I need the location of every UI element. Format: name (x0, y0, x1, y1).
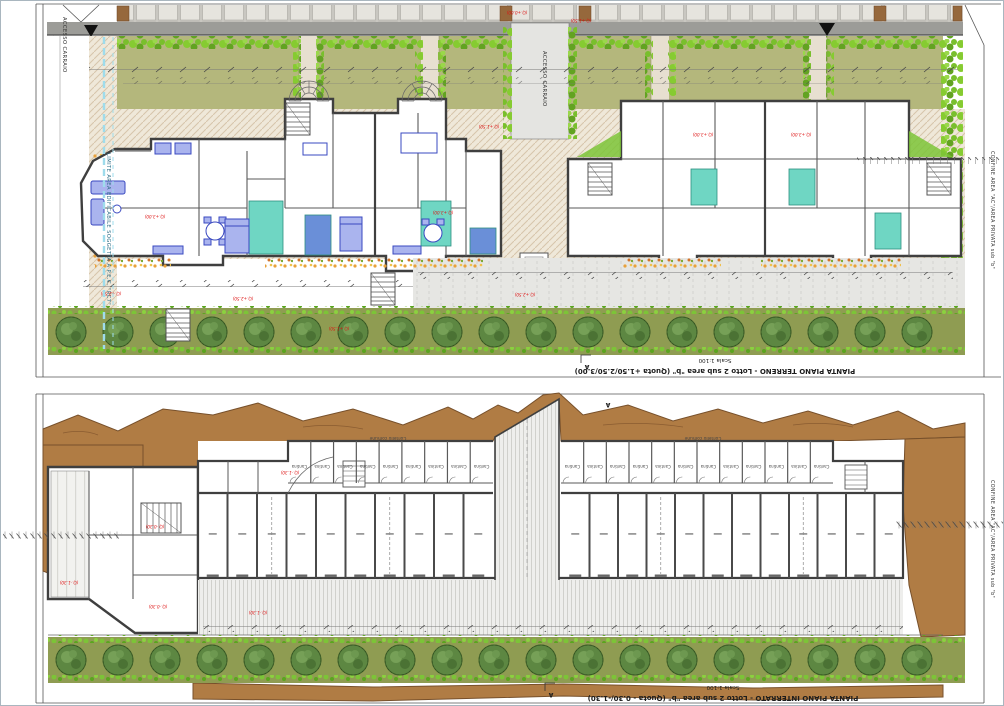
tree-icon (667, 645, 697, 675)
staircase (588, 163, 612, 195)
tree-icon (714, 317, 744, 347)
cantina-label: Cantina (700, 464, 716, 469)
tree-icon (573, 645, 603, 675)
boundary-label: CONFINE AREA "AC"/AREA PRIVATA sub "b" (989, 151, 995, 269)
boundary-label: CONFINE AREA "AC"/AREA PRIVATA sub "b" (989, 480, 995, 598)
quota-label: (Q.+1.50) (478, 124, 499, 129)
tree-icon (385, 645, 415, 675)
corridor-label: Corsello comune (369, 435, 406, 441)
section-marker: A (584, 363, 589, 370)
tree-icon (338, 645, 368, 675)
quota-label: (Q.-0.30) (148, 604, 167, 609)
cantina-label: Cantina (723, 464, 739, 469)
dimension-chain (897, 522, 1004, 529)
dimension-chain (857, 157, 1003, 164)
quota-label: (Q.+3.00) (790, 132, 811, 137)
tree-icon (667, 317, 697, 347)
tree-icon (291, 645, 321, 675)
limit-area-label: LIMITE AREA EDIFICABILE SOGGETTA A P.E.C… (105, 153, 111, 305)
garden-steps (166, 309, 190, 341)
cantina-label: Cantina (564, 464, 580, 469)
tree-icon (197, 645, 227, 675)
cantina-label: Cantina (451, 464, 467, 469)
tree-icon (620, 645, 650, 675)
tree-icon (338, 317, 368, 347)
tree-icon (244, 317, 274, 347)
tree-icon (902, 317, 932, 347)
tree-icon (197, 317, 227, 347)
tree-icon (526, 317, 556, 347)
tree-icon (432, 317, 462, 347)
cantina-label: Cantina (632, 464, 648, 469)
tree-icon (855, 645, 885, 675)
quota-label: (Q.+3.00) (692, 132, 713, 137)
tree-icon (150, 645, 180, 675)
staircase (286, 103, 310, 135)
cantina-label: Cantina (359, 464, 375, 469)
quota-label: (Q.+1.50) (570, 18, 591, 23)
plan-title: PIANTA PIANO TERRENO - Lotto 2 sub area … (575, 367, 856, 375)
tree-row-band (48, 635, 965, 683)
tree-icon (808, 645, 838, 675)
staircase (845, 465, 867, 489)
quota-label: (Q.+3.00) (432, 210, 453, 215)
top-title-block: Scala 1:100 PIANTA PIANO TERRENO - Lotto… (575, 355, 856, 375)
cantina-label: Cantina (745, 464, 761, 469)
access-left-label: ACCESSO CARRAIO (61, 17, 67, 73)
quota-label: (Q.-1.30) (59, 580, 78, 585)
scale-label: Scala 1:100 (706, 684, 739, 690)
dimension-chain (63, 66, 958, 73)
tree-icon (103, 645, 133, 675)
tree-icon (103, 317, 133, 347)
tree-icon (855, 317, 885, 347)
quota-label: (Q.+2.50) (232, 296, 253, 301)
building-right-block (568, 101, 961, 269)
tree-icon (479, 645, 509, 675)
staircase (927, 163, 951, 195)
cantina-label: Cantina (677, 464, 693, 469)
tree-icon (526, 645, 556, 675)
section-leader (581, 355, 591, 363)
cantina-label: Cantina (337, 464, 353, 469)
cantina-label: Cantina (813, 464, 829, 469)
cantina-label: Cantina (473, 464, 489, 469)
cantina-label: Cantina (428, 464, 444, 469)
plan-title: PIANTA PIANO INTERRATO - Lotto 2 sub are… (588, 694, 859, 702)
cantina-label: Cantina (382, 464, 398, 469)
quota-label: (Q.+3.00) (144, 214, 165, 219)
section-marker: A (548, 691, 553, 698)
cantina-label: Cantina (655, 464, 671, 469)
dimension-chain (3, 532, 122, 539)
cantina-label: Cantina (314, 464, 330, 469)
dimension-chain (83, 280, 413, 287)
tree-icon (620, 317, 650, 347)
cantina-label: Cantina (587, 464, 603, 469)
tree-icon (902, 645, 932, 675)
quota-label: (Q.+0.00) (506, 10, 527, 15)
section-marker: A (605, 401, 610, 408)
tree-icon (56, 645, 86, 675)
quota-label: (Q.+2.50) (514, 292, 535, 297)
tree-icon (808, 317, 838, 347)
tree-icon (761, 645, 791, 675)
basement-left-unit (48, 467, 198, 633)
cantina-label: Cantina (609, 464, 625, 469)
ground-floor-panel: ACCESSO CARRAIO ACCESSO CARRAIO LIMITE A… (3, 3, 1003, 379)
tree-icon (385, 317, 415, 347)
cantina-label: Cantina (291, 464, 307, 469)
cantina-label: Cantina (405, 464, 421, 469)
access-center-label: ACCESSO CARRAIO (541, 51, 547, 107)
basement-panel: CantinaCantinaCantinaCantinaCantinaCanti… (3, 385, 1003, 705)
plan-sheet: ACCESSO CARRAIO ACCESSO CARRAIO LIMITE A… (0, 0, 1004, 706)
dimension-chain (203, 625, 903, 632)
quota-label: (Q.-1.30) (248, 610, 267, 615)
tree-icon (56, 317, 86, 347)
cantina-label: Cantina (768, 464, 784, 469)
dimension-chain (123, 77, 943, 84)
tree-icon (761, 317, 791, 347)
scale-label: Scala 1:100 (698, 357, 731, 363)
tree-row-band (48, 306, 965, 355)
garden-steps (371, 273, 395, 305)
tree-icon (573, 317, 603, 347)
cantina-label: Cantina (791, 464, 807, 469)
quota-label: (Q.-0.30) (145, 524, 164, 529)
quota-label: (Q.-1.30) (280, 470, 299, 475)
tree-icon (432, 645, 462, 675)
tree-icon (714, 645, 744, 675)
corridor-label: Corsello comune (684, 435, 721, 441)
tree-icon (291, 317, 321, 347)
tree-icon (244, 645, 274, 675)
tree-icon (479, 317, 509, 347)
dimension-chain (418, 272, 953, 279)
quota-label: (Q.+1.50) (328, 326, 349, 331)
